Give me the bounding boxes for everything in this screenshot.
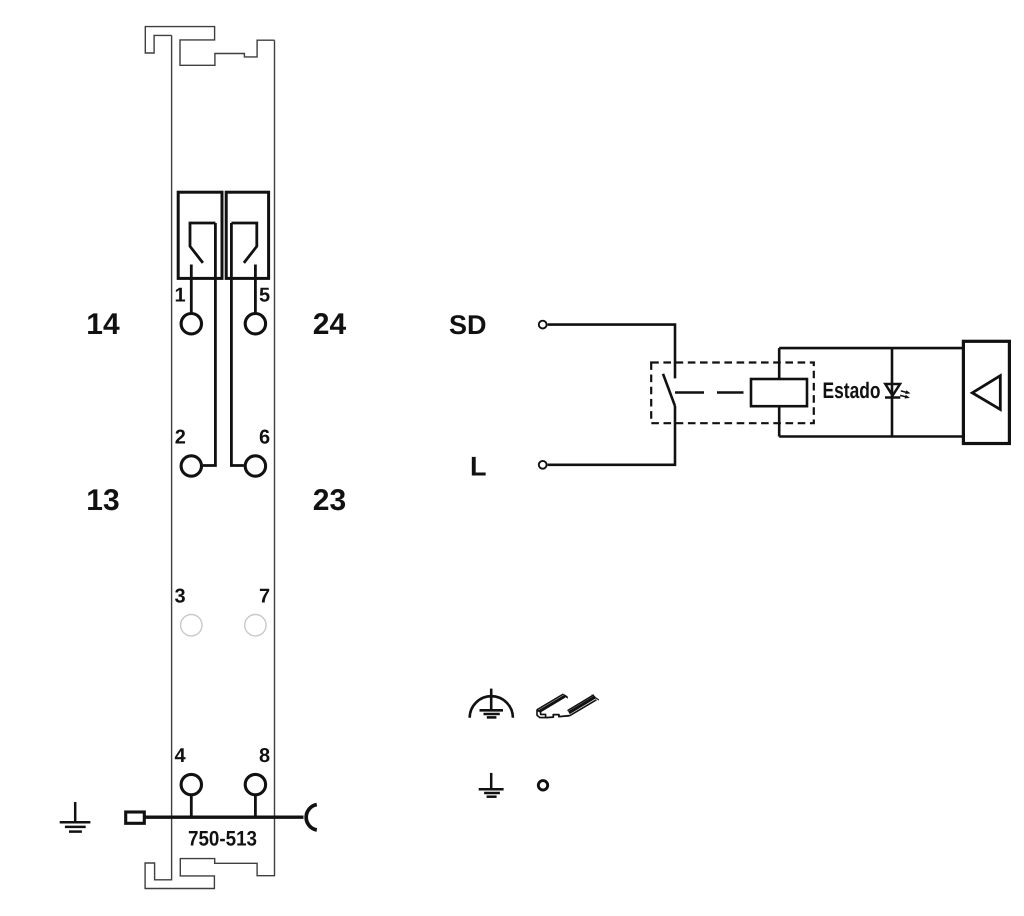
- svg-text:14: 14: [86, 308, 120, 341]
- svg-text:4: 4: [175, 745, 187, 767]
- svg-text:Estado: Estado: [823, 378, 881, 403]
- svg-text:8: 8: [259, 745, 270, 767]
- svg-text:1: 1: [175, 285, 186, 307]
- svg-text:SD: SD: [449, 310, 487, 340]
- svg-text:750-513: 750-513: [188, 828, 257, 851]
- svg-text:2: 2: [175, 427, 186, 449]
- svg-text:6: 6: [259, 427, 270, 449]
- svg-text:24: 24: [313, 308, 347, 341]
- svg-text:23: 23: [313, 484, 346, 517]
- svg-text:5: 5: [259, 285, 270, 307]
- svg-text:7: 7: [259, 585, 270, 607]
- svg-text:13: 13: [86, 484, 119, 517]
- svg-text:3: 3: [175, 585, 186, 607]
- svg-text:L: L: [470, 452, 487, 482]
